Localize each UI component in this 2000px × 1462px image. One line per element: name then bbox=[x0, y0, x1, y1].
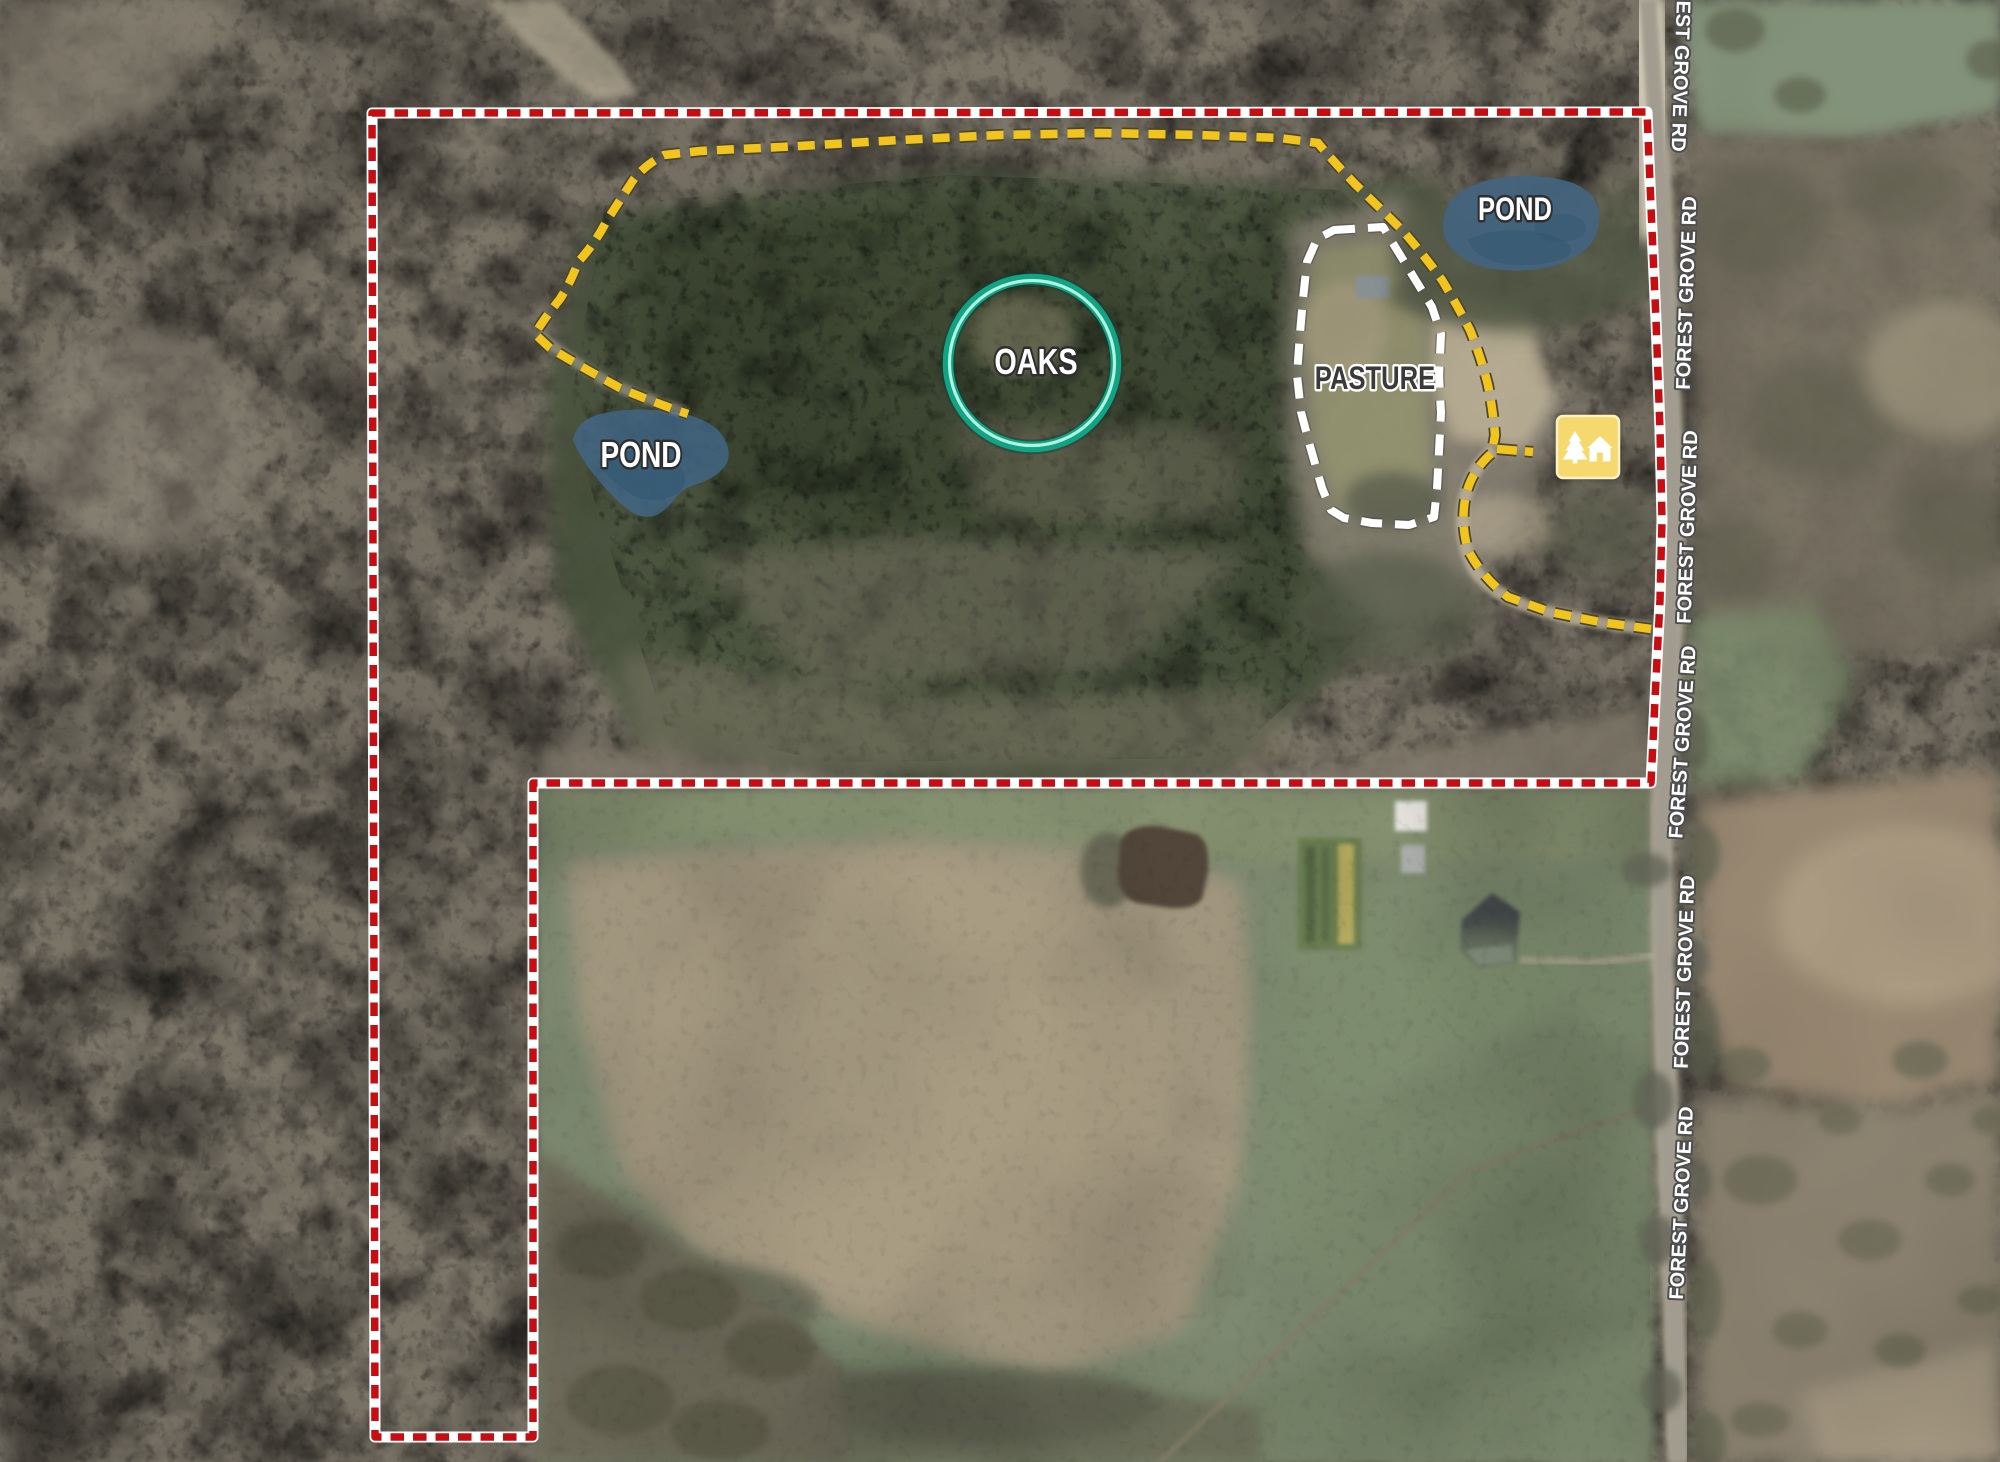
svg-text:POND: POND bbox=[600, 435, 681, 475]
svg-text:PASTURE: PASTURE bbox=[1315, 361, 1435, 396]
svg-text:POND: POND bbox=[1478, 192, 1552, 227]
svg-text:OAKS: OAKS bbox=[994, 341, 1077, 382]
